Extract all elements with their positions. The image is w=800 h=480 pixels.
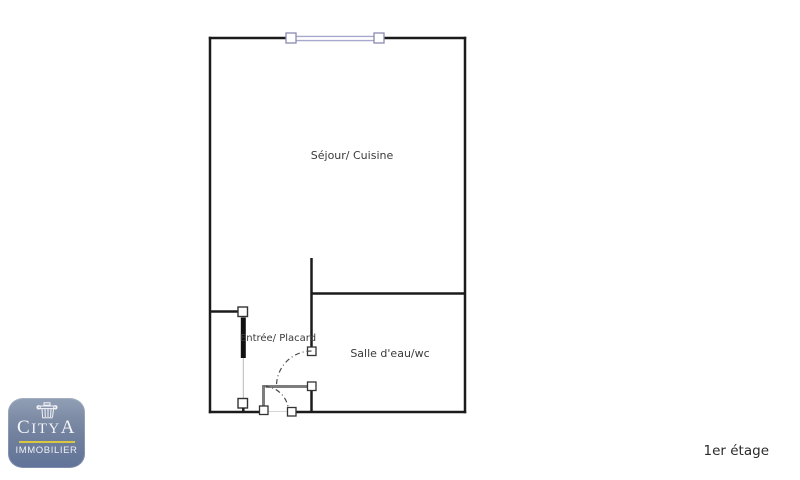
logo-brand-text: CITYA bbox=[17, 419, 76, 438]
logo-tagline: IMMOBILIER bbox=[16, 445, 78, 456]
room-label-sejour-cuisine: Séjour/ Cuisine bbox=[311, 149, 394, 162]
window bbox=[286, 33, 384, 43]
logo-brand-mid: ITY bbox=[31, 421, 61, 437]
window-jamb-left bbox=[286, 33, 296, 43]
citya-immobilier-logo: CITYA IMMOBILIER bbox=[8, 398, 85, 468]
logo-brand-last: A bbox=[61, 417, 76, 438]
entrance-door-hinge-jamb bbox=[260, 406, 269, 415]
floor-label: 1er étage bbox=[704, 443, 769, 459]
room-label-entree-placard: Entrée/ Placard bbox=[240, 332, 316, 344]
entrance-door-strike-jamb bbox=[288, 408, 297, 417]
placard-jamb-top bbox=[238, 307, 248, 317]
interior-door-swing-arc bbox=[277, 351, 312, 386]
logo-brand-first: C bbox=[17, 417, 31, 438]
interior-door bbox=[266, 347, 317, 391]
room-label-salle-eau-wc: Salle d'eau/wc bbox=[350, 347, 429, 360]
placard-door bbox=[238, 307, 248, 412]
column-capital-icon bbox=[35, 402, 59, 419]
window-jamb-right bbox=[374, 33, 384, 43]
entrance-door bbox=[260, 385, 297, 416]
interior-door-hinge-jamb bbox=[308, 382, 317, 391]
placard-jamb-bottom bbox=[238, 399, 248, 409]
logo-accent-rule bbox=[19, 441, 75, 443]
floor-plan: Séjour/ Cuisine Entrée/ Placard Salle d'… bbox=[0, 0, 800, 480]
